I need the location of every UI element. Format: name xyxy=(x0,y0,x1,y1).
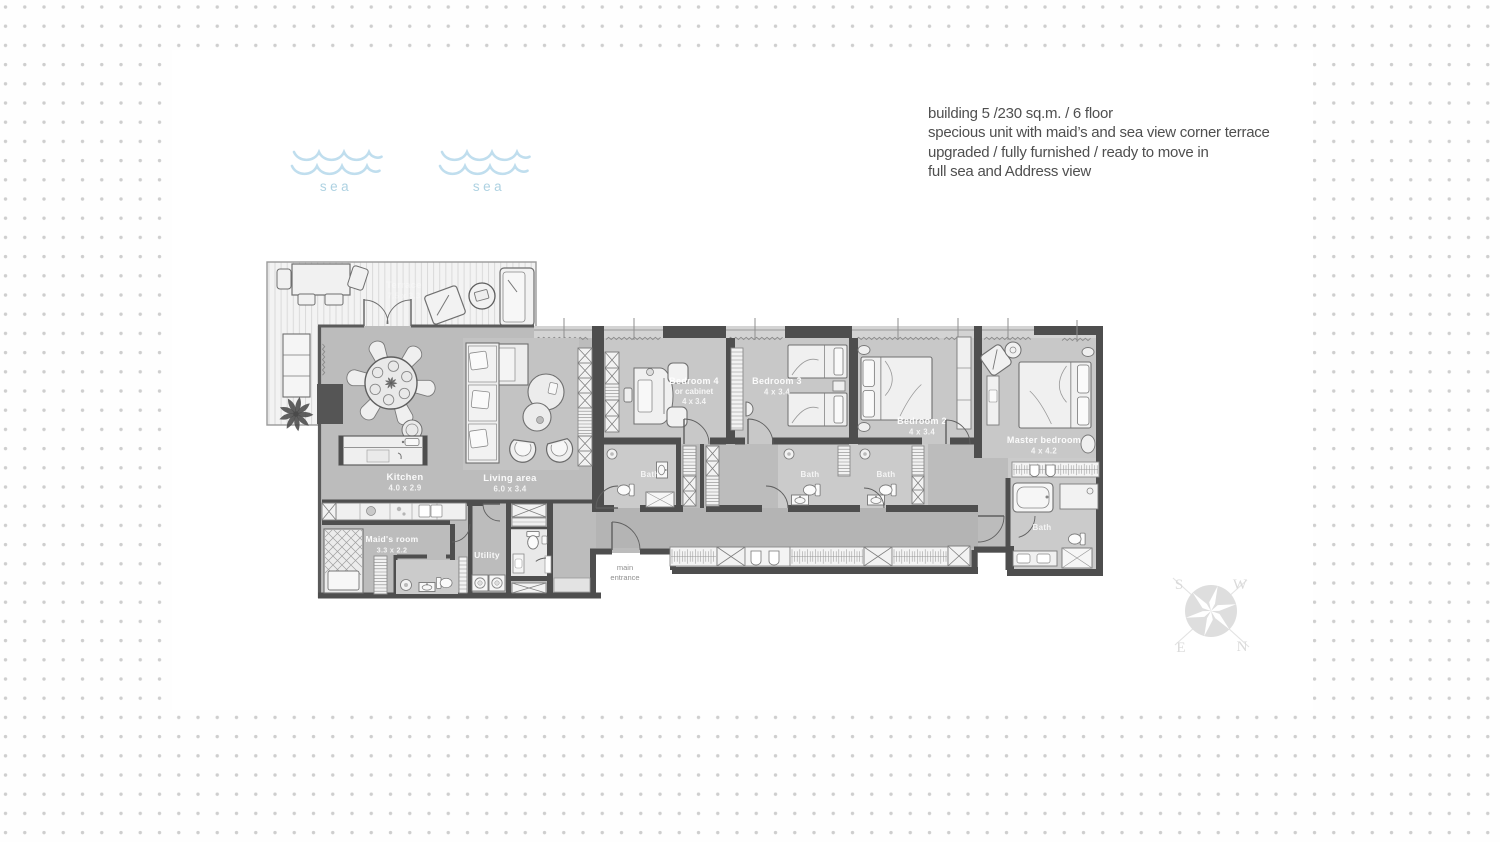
svg-text:E: E xyxy=(1176,640,1185,656)
svg-text:Bedroom 2: Bedroom 2 xyxy=(897,416,947,426)
svg-text:main: main xyxy=(617,563,633,572)
svg-text:or cabinet: or cabinet xyxy=(675,387,714,396)
svg-text:4 x 3.4: 4 x 3.4 xyxy=(909,428,935,437)
svg-text:sea: sea xyxy=(320,179,352,194)
svg-text:S: S xyxy=(1175,577,1183,593)
svg-text:4 x 3.4: 4 x 3.4 xyxy=(682,397,707,406)
svg-text:Bath: Bath xyxy=(801,470,820,479)
svg-text:Bath: Bath xyxy=(877,470,896,479)
svg-text:4.0 x 2.9: 4.0 x 2.9 xyxy=(388,484,421,493)
svg-text:4 x 3.4: 4 x 3.4 xyxy=(764,388,790,397)
svg-text:Master bedroom: Master bedroom xyxy=(1007,435,1081,445)
svg-text:Utility: Utility xyxy=(474,550,500,560)
svg-text:Living area: Living area xyxy=(483,473,537,484)
svg-text:6.0 x 3.4: 6.0 x 3.4 xyxy=(493,485,526,494)
svg-text:Bath: Bath xyxy=(1033,523,1052,532)
svg-text:N: N xyxy=(1237,639,1248,655)
svg-text:7.5 x 3.3: 7.5 x 3.3 xyxy=(387,292,420,301)
svg-text:entrance: entrance xyxy=(610,573,639,582)
svg-text:Terrace: Terrace xyxy=(386,280,422,291)
svg-text:Kitchen: Kitchen xyxy=(387,472,424,483)
svg-text:4 x 4.2: 4 x 4.2 xyxy=(1031,447,1057,456)
svg-text:sea: sea xyxy=(473,179,505,194)
svg-text:Bedroom 3: Bedroom 3 xyxy=(752,376,802,386)
svg-text:3.3 x 2.2: 3.3 x 2.2 xyxy=(377,546,408,555)
svg-text:Maid's room: Maid's room xyxy=(365,534,418,544)
svg-text:Bath: Bath xyxy=(641,470,660,479)
svg-text:W: W xyxy=(1233,577,1248,593)
svg-text:Bedroom 4: Bedroom 4 xyxy=(669,376,719,386)
